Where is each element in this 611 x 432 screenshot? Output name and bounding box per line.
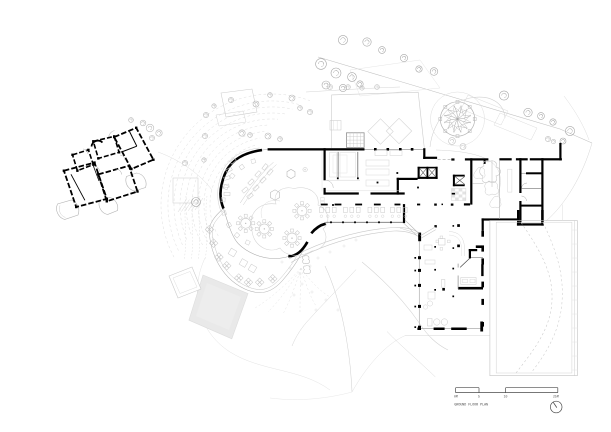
svg-text:5: 5 [478,394,480,398]
svg-text:GROUND FLOOR PLAN: GROUND FLOOR PLAN [454,402,488,406]
svg-text:10: 10 [504,394,508,398]
svg-text:0M: 0M [454,394,458,398]
svg-text:25M: 25M [553,394,559,398]
